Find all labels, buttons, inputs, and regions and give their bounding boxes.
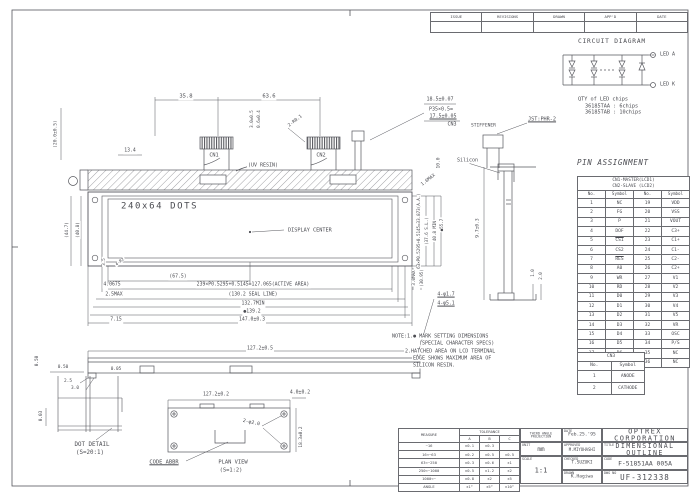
pin-row: 15D433OSC xyxy=(578,330,690,339)
tolerance-cell: ±0.1 xyxy=(460,443,480,451)
pin-row: 14D332VR xyxy=(578,321,690,330)
jst-connector xyxy=(483,123,527,168)
tolerance-row: ~16±0.1±0.3 xyxy=(399,443,520,451)
dim-label: (SPECIAL CHARACTER SPECS) xyxy=(418,342,495,347)
tolerance-cell: ±0.6 xyxy=(480,459,500,467)
tolerance-cell: 16<~63 xyxy=(399,451,460,459)
tolerance-cell: ±0.8 xyxy=(460,475,480,483)
pin-number-cell: 20 xyxy=(634,208,662,217)
pin-number-cell: 6 xyxy=(578,245,606,254)
cn3-title: CN3 xyxy=(578,353,645,362)
pin-number-cell: 29 xyxy=(634,292,662,301)
dim-label: (40.8) xyxy=(77,221,81,239)
revision-header-cell: APP'D xyxy=(585,13,636,22)
dim-label: JST:PHR-2 xyxy=(527,117,557,122)
tolerance-cell: ±0.5 xyxy=(500,451,520,459)
pin-row: 10RD28V2 xyxy=(578,283,690,292)
pin-number-cell: 34 xyxy=(634,339,662,348)
pin-number-cell: 14 xyxy=(578,321,606,330)
pin-row: 8A026C2+ xyxy=(578,264,690,273)
pin-row: 6CS224C1- xyxy=(578,245,690,254)
dim-label: 3.0 xyxy=(70,387,80,391)
pin-number-cell: 33 xyxy=(634,330,662,339)
pin-col-symbol: Symbol xyxy=(606,191,634,199)
approved-value: M.MIYOHASHI xyxy=(563,448,601,452)
pin-number-cell: 5 xyxy=(578,236,606,245)
pin-number-cell: 30 xyxy=(634,302,662,311)
revision-header-cell: DATE xyxy=(636,13,687,22)
revision-empty-row xyxy=(431,21,688,33)
dim-label: 2.0 xyxy=(539,271,543,281)
pin-symbol-cell: VR xyxy=(662,321,690,330)
dim-label: 63×P0.5295+0.5145=33.873(A.A.) xyxy=(417,192,421,270)
pin-number-cell: 11 xyxy=(578,292,606,301)
pin-row: 4DOF22C3+ xyxy=(578,227,690,236)
pin-symbol-cell: RD xyxy=(606,283,634,292)
dim-label: 3.0MAX xyxy=(412,269,416,286)
scale-label: SCALE xyxy=(522,458,532,461)
pin-symbol-cell: C2- xyxy=(662,255,690,264)
tolerance-cell: 1000<~ xyxy=(399,475,460,483)
side-view xyxy=(416,164,541,360)
pin-symbol-cell: D2 xyxy=(606,311,634,320)
dim-label: DOT DETAIL xyxy=(74,443,111,449)
tolerance-cell: ±10° xyxy=(500,483,520,491)
dim-label: (44.7) xyxy=(66,221,70,239)
pin-row: 2FG20VSS xyxy=(578,208,690,217)
tolerance-cell: ±2 xyxy=(480,475,500,483)
cn3-connector xyxy=(352,131,364,170)
tolerance-cell: ±5° xyxy=(480,483,500,491)
pin-number-cell: 10 xyxy=(578,283,606,292)
tolerance-cell: ~16 xyxy=(399,443,460,451)
pin-symbol-cell: V4 xyxy=(662,302,690,311)
dim-label: CODE ABBR xyxy=(148,460,179,465)
dim-label: ●139.2 xyxy=(242,311,261,316)
dwg-no-value: UF-312338 xyxy=(603,474,687,482)
tolerance-cell: 250<~1000 xyxy=(399,467,460,475)
drawn-cell: DRAWN K.Hagiwa xyxy=(562,470,602,484)
dim-label: 0.50 xyxy=(57,366,70,370)
dim-label: (67.5) xyxy=(168,276,187,281)
tolerance-row: 250<~1000±0.5±1.2±2 xyxy=(399,467,520,475)
pin-number-cell: 23 xyxy=(634,236,662,245)
pin-number-cell: 15 xyxy=(578,330,606,339)
dim-label: 9.7±0.3 xyxy=(477,217,482,238)
pin-symbol-cell: OSC xyxy=(662,330,690,339)
cn3-cell: 1 xyxy=(578,371,612,383)
revision-table: ISSUEREVISIONSDRAWNAPP'DDATE xyxy=(430,12,688,33)
dim-label: 4.0±0.2 xyxy=(289,392,311,397)
pin-symbol-cell: D1 xyxy=(606,302,634,311)
scale-cell: SCALE 1:1 xyxy=(520,456,562,484)
tolerance-cell: ±2 xyxy=(500,467,520,475)
dim-label: LED K xyxy=(659,83,676,88)
zener-diode-symbol xyxy=(639,55,645,85)
tolerance-cell: 63<~250 xyxy=(399,459,460,467)
tolerance-cell: ±0.3 xyxy=(480,443,500,451)
pin-symbol-cell: C2+ xyxy=(662,264,690,273)
pin-table-body: 1NC19VDD2FG20VSS3P21VOUT4DOF22C3+5CS123C… xyxy=(578,199,690,368)
tolerance-table-body: ~16±0.1±0.316<~63±0.2±0.5±0.563<~250±0.3… xyxy=(399,443,520,492)
dim-label: 3.0±0.5 xyxy=(250,109,254,129)
tolerance-row: ANGLE±1°±5°±10° xyxy=(399,483,520,491)
pin-row: 16D534P/S xyxy=(578,339,690,348)
tol-col-a: A xyxy=(460,436,480,443)
pin-number-cell: 28 xyxy=(634,283,662,292)
tolerance-cell: ±0.5 xyxy=(480,451,500,459)
pin-col-no: No. xyxy=(634,191,662,199)
pin-symbol-cell: D4 xyxy=(606,330,634,339)
pin-symbol-cell: DOF xyxy=(606,227,634,236)
code-value: F-51851AA 005A xyxy=(603,460,687,467)
dim-label: 2.5 xyxy=(63,380,73,384)
pin-row: 13D231V5 xyxy=(578,311,690,320)
pin-symbol-cell: D0 xyxy=(606,292,634,301)
pin-number-cell: 26 xyxy=(634,264,662,273)
pin-symbol-cell: FG xyxy=(606,208,634,217)
plan-view xyxy=(168,398,306,461)
pin-row: 12D130V4 xyxy=(578,302,690,311)
pin-row: 9WR27V1 xyxy=(578,274,690,283)
dim-label: 18.3±0.2 xyxy=(300,425,304,448)
dim-label: 4-φ5.1 xyxy=(436,303,455,308)
tolerance-row: 63<~250±0.3±0.6±1 xyxy=(399,459,520,467)
tol-col-c: C xyxy=(500,436,520,443)
pin-row: 3P21VOUT xyxy=(578,217,690,226)
pin-number-cell: 12 xyxy=(578,302,606,311)
pin-symbol-cell: NC xyxy=(606,199,634,208)
pin-number-cell: 32 xyxy=(634,321,662,330)
dim-label: EDGE SHOWS MAXIMUM AREA OF xyxy=(412,357,492,362)
tolerance-cell xyxy=(500,443,520,451)
pin-number-cell: 1 xyxy=(578,199,606,208)
dim-label: 127.2±0.2 xyxy=(202,394,230,399)
dim-label: CN1 xyxy=(208,153,219,158)
tolerance-label: TOLERANCE xyxy=(460,429,520,436)
pin-number-cell: 31 xyxy=(634,311,662,320)
dim-label: 4-φ1.7 xyxy=(436,294,455,299)
dim-label: 127.2±0.5 xyxy=(246,348,274,353)
pin-symbol-cell: VDD xyxy=(662,199,690,208)
dim-label: QTY of LED chips xyxy=(577,97,629,102)
code-cell: CODE F-51851AA 005A xyxy=(602,456,688,470)
circuit-diagram xyxy=(563,53,656,88)
dim-label: 132.7MIN xyxy=(240,303,265,308)
dim-label: (20.0±0.5) xyxy=(55,119,60,149)
dim-label: (37.6 S.L.) xyxy=(425,216,429,246)
pin-row: 1NC19VDD xyxy=(578,199,690,208)
dot-detail-grid xyxy=(46,372,122,440)
scale-value: 1:1 xyxy=(521,468,561,475)
dim-label: 0.50 xyxy=(36,355,40,368)
pin-number-cell: 2 xyxy=(578,208,606,217)
dim-label: 36185TAB : 10chips xyxy=(584,110,642,115)
pin-symbol-cell: P xyxy=(606,217,634,226)
dim-label: 63.6 xyxy=(261,94,276,100)
checked-cell: CHECKED T.SUZUKI xyxy=(562,456,602,470)
company-name: OPTREX CORPORATION xyxy=(603,428,687,442)
tol-col-b: B xyxy=(480,436,500,443)
pin-symbol-cell: VSS xyxy=(662,208,690,217)
dim-label: SILICON RESIN. xyxy=(412,364,456,369)
pin-symbol-cell: NC xyxy=(662,358,690,367)
revision-header-cell: ISSUE xyxy=(431,13,482,22)
unit-value: mm xyxy=(521,446,561,452)
tolerance-cell: ±0.5 xyxy=(460,467,480,475)
dim-label: ●55.7 xyxy=(440,218,444,233)
pin-symbol-cell: P/S xyxy=(662,339,690,348)
checked-value: T.SUZUKI xyxy=(563,461,601,466)
pin-col-symbol: Symbol xyxy=(662,191,690,199)
pin-col-no: No. xyxy=(578,191,606,199)
tolerance-cell: ±1.2 xyxy=(480,467,500,475)
projection-label: THIRD ANGLE PROJECTION xyxy=(521,432,561,439)
dim-label: 4.0675 xyxy=(102,284,121,289)
projection-cell: THIRD ANGLE PROJECTION xyxy=(520,428,562,442)
pin-number-cell: 22 xyxy=(634,227,662,236)
dim-label: 147.0±0.3 xyxy=(238,319,266,324)
dim-label: 240x64 DOTS xyxy=(120,203,199,212)
cn3-col-symbol: Symbol xyxy=(611,362,645,371)
pin-symbol-cell: C1+ xyxy=(662,236,690,245)
dim-label: (S=1:2) xyxy=(219,468,244,473)
drawing-title: DIMENSIONAL OUTLINE xyxy=(603,443,687,456)
dim-label: (S=20:1) xyxy=(75,451,105,457)
date-value: Feb.25.'95 xyxy=(563,433,601,438)
pin-number-cell: 25 xyxy=(634,255,662,264)
dim-label: (UV RESIN) xyxy=(247,164,279,169)
pin-number-cell: 9 xyxy=(578,274,606,283)
cn3-cell: 2 xyxy=(578,383,612,395)
pin-symbol-cell: V1 xyxy=(662,274,690,283)
tolerance-cell: ±5 xyxy=(500,475,520,483)
dim-label: 0.6±0.4 xyxy=(257,109,261,129)
dim-label: 2.HATCHED AREA ON LCD TERMINAL xyxy=(404,350,496,355)
pin-symbol-cell: D5 xyxy=(606,339,634,348)
dim-label: 13.4 xyxy=(123,150,137,155)
dim-label: (30.95) xyxy=(420,268,424,288)
pin-assignment-table: CN1-MASTER(LCD1) CN2-SLAVE (LCD2) No. Sy… xyxy=(577,176,690,368)
tolerance-row: 1000<~±0.8±2±5 xyxy=(399,475,520,483)
unit-cell: UNIT mm xyxy=(520,442,562,456)
pin-header-cn2: CN2-SLAVE (LCD2) xyxy=(578,184,689,189)
pin-symbol-cell: WR xyxy=(606,274,634,283)
dim-label: 40.8 MIN xyxy=(433,220,437,242)
pin-number-cell: 7 xyxy=(578,255,606,264)
drawing-sheet: CIRCUIT DIAGRAMLED ALED KQTY of LED chip… xyxy=(0,0,700,494)
dim-label: 7.15 xyxy=(109,319,123,324)
pin-row: 11D029V3 xyxy=(578,292,690,301)
cn3-cell: ANODE xyxy=(611,371,645,383)
pin-symbol-cell: CS2 xyxy=(606,245,634,254)
cn3-table-body: 1ANODE2CATHODE xyxy=(578,371,645,395)
pin-symbol-cell: NC xyxy=(662,349,690,358)
pin-symbol-cell: V5 xyxy=(662,311,690,320)
pin-number-cell: 19 xyxy=(634,199,662,208)
pin-symbol-cell: C1- xyxy=(662,245,690,254)
tolerance-cell: ±0.2 xyxy=(460,451,480,459)
dim-label: Silicon xyxy=(456,159,479,164)
pin-symbol-cell: V2 xyxy=(662,283,690,292)
bottom-side-view xyxy=(80,351,420,390)
date-cell: DATE Feb.25.'95 xyxy=(562,428,602,442)
revision-header-cell: REVISIONS xyxy=(482,13,533,22)
dim-label: 1.0 xyxy=(531,268,535,278)
dim-label: STIFFENER xyxy=(470,125,497,130)
pin-symbol-cell: VOUT xyxy=(662,217,690,226)
dim-label: 239×P0.5295+0.5145=127.065(ACTIVE AREA) xyxy=(196,284,311,289)
pin-symbol-cell: C3+ xyxy=(662,227,690,236)
cn3-col-no: No. xyxy=(578,362,612,371)
pin-number-cell: 3 xyxy=(578,217,606,226)
cn3-row: 1ANODE xyxy=(578,371,645,383)
pin-row: 7RES25C2- xyxy=(578,255,690,264)
dim-label: 18.5±0.07 xyxy=(425,98,454,103)
dim-label: PLAN VIEW xyxy=(217,460,248,465)
display-center-mark xyxy=(249,231,251,233)
top-view xyxy=(61,97,527,190)
pin-assignment-title: PIN ASSIGNMENT xyxy=(577,158,649,167)
tolerance-table: MEASURE TOLERANCE A B C ~16±0.1±0.316<~6… xyxy=(398,428,520,492)
pin-number-cell: 8 xyxy=(578,264,606,273)
dim-label: 3.5 xyxy=(102,257,106,267)
tolerance-cell: ANGLE xyxy=(399,483,460,491)
dim-label: 10.0 xyxy=(438,156,443,169)
dim-label: 2.5MAX xyxy=(104,294,123,299)
cn3-table: CN3 No. Symbol 1ANODE2CATHODE xyxy=(577,352,645,395)
dim-label: P35×0.5= xyxy=(428,108,454,113)
led-symbols xyxy=(569,55,625,85)
revision-header-cell: DRAWN xyxy=(533,13,584,22)
dim-label: LED A xyxy=(659,53,676,58)
dwg-no-cell: DWG NO UF-312338 xyxy=(602,470,688,484)
measure-label: MEASURE xyxy=(399,429,460,443)
pin-number-cell: 13 xyxy=(578,311,606,320)
tolerance-cell: ±1° xyxy=(460,483,480,491)
dim-label: 0.03 xyxy=(40,410,44,423)
pin-number-cell: 21 xyxy=(634,217,662,226)
pin-number-cell: 27 xyxy=(634,274,662,283)
approved-cell: APPROVED M.MIYOHASHI xyxy=(562,442,602,456)
dim-label: 35.8 xyxy=(178,94,193,100)
pin-symbol-cell: RES xyxy=(606,255,634,264)
pin-symbol-cell: D3 xyxy=(606,321,634,330)
pin-symbol-cell: CS1 xyxy=(606,236,634,245)
cn3-row: 2CATHODE xyxy=(578,383,645,395)
tolerance-row: 16<~63±0.2±0.5±0.5 xyxy=(399,451,520,459)
tolerance-cell: ±1 xyxy=(500,459,520,467)
cn3-cell: CATHODE xyxy=(611,383,645,395)
drawn-value: K.Hagiwa xyxy=(563,475,601,480)
pin-number-cell: 24 xyxy=(634,245,662,254)
dim-label: CN2 xyxy=(315,153,326,158)
pin-number-cell: 4 xyxy=(578,227,606,236)
pin-row: 5CS123C1+ xyxy=(578,236,690,245)
pin-symbol-cell: V3 xyxy=(662,292,690,301)
dim-label: NOTE:1.● MARK SETTING DIMENSIONS xyxy=(391,335,489,340)
dim-label: 17.5±0.05 xyxy=(428,115,457,120)
dim-label: 0.05 xyxy=(110,368,123,372)
dim-label: CIRCUIT DIAGRAM xyxy=(577,39,647,45)
dim-label: DISPLAY CENTER xyxy=(287,228,333,233)
revision-header-row: ISSUEREVISIONSDRAWNAPP'DDATE xyxy=(431,13,688,22)
pin-number-cell: 16 xyxy=(578,339,606,348)
pin-symbol-cell: A0 xyxy=(606,264,634,273)
company-cell: OPTREX CORPORATION xyxy=(602,428,688,442)
dim-label: (130.2 SEAL LINE) xyxy=(227,294,278,299)
tolerance-cell: ±0.3 xyxy=(460,459,480,467)
drawing-title-cell: TITLE DIMENSIONAL OUTLINE xyxy=(602,442,688,456)
dim-label: CN3 xyxy=(446,123,457,128)
